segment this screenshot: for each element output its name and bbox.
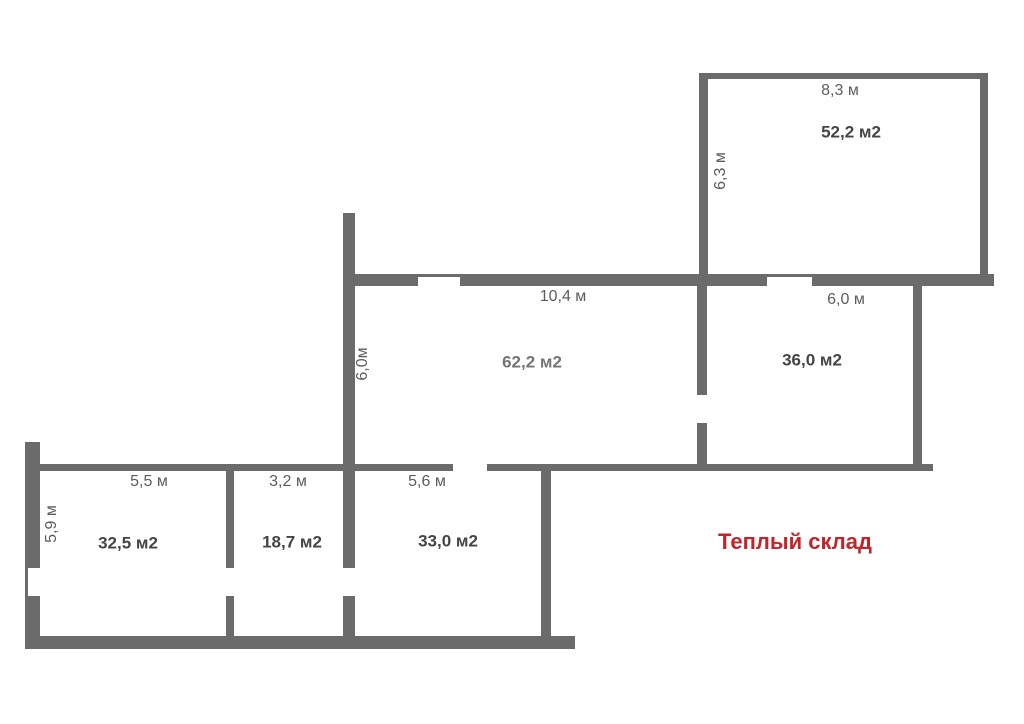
wall-segment — [541, 471, 551, 641]
wall-segment — [697, 423, 707, 464]
wall-segment — [226, 596, 234, 641]
warehouse-title-label: Теплый склад — [718, 531, 872, 553]
room-area-label-room-33-0: 33,0 м2 — [418, 533, 478, 550]
dimension-label-room-33-0: 5,6 м — [408, 474, 446, 490]
wall-segment — [913, 286, 922, 471]
wall-segment — [487, 464, 933, 471]
dimension-label-room-36-0: 6,0 м — [827, 292, 865, 308]
room-area-label-room-32-5: 32,5 м2 — [98, 535, 158, 552]
wall-segment — [226, 471, 234, 568]
dimension-label-room-32-5: 5,5 м — [130, 474, 168, 490]
wall-segment — [767, 274, 812, 277]
wall-segment — [25, 442, 40, 568]
room-area-label-room-18-7: 18,7 м2 — [262, 534, 322, 551]
wall-segment — [980, 73, 988, 286]
dimension-label-room-62-2: 10,4 м — [540, 289, 587, 305]
wall-segment — [699, 73, 988, 79]
wall-segment — [697, 286, 707, 395]
wall-segment — [343, 213, 355, 568]
wall-segment — [460, 274, 767, 286]
wall-segment — [27, 464, 453, 471]
room-area-label-room-36-0: 36,0 м2 — [782, 352, 842, 369]
dimension-label-room-52-2: 8,3 м — [821, 83, 859, 99]
room-area-label-room-52-2: 52,2 м2 — [821, 124, 881, 141]
floor-plan: 52,2 м28,3 м6,3 м62,2 м210,4 м6,0м36,0 м… — [0, 0, 1024, 724]
dimension-label-room-18-7: 3,2 м — [269, 474, 307, 490]
wall-segment — [812, 274, 994, 286]
dimension-label-room-32-5: 5,9 м — [44, 505, 60, 543]
room-area-label-room-62-2: 62,2 м2 — [502, 354, 562, 371]
wall-segment — [699, 73, 708, 274]
dimension-label-room-52-2: 6,3 м — [713, 152, 729, 190]
dimension-label-room-62-2: 6,0м — [355, 347, 371, 380]
wall-segment — [25, 636, 575, 649]
wall-segment — [418, 274, 460, 277]
wall-segment — [25, 568, 28, 596]
